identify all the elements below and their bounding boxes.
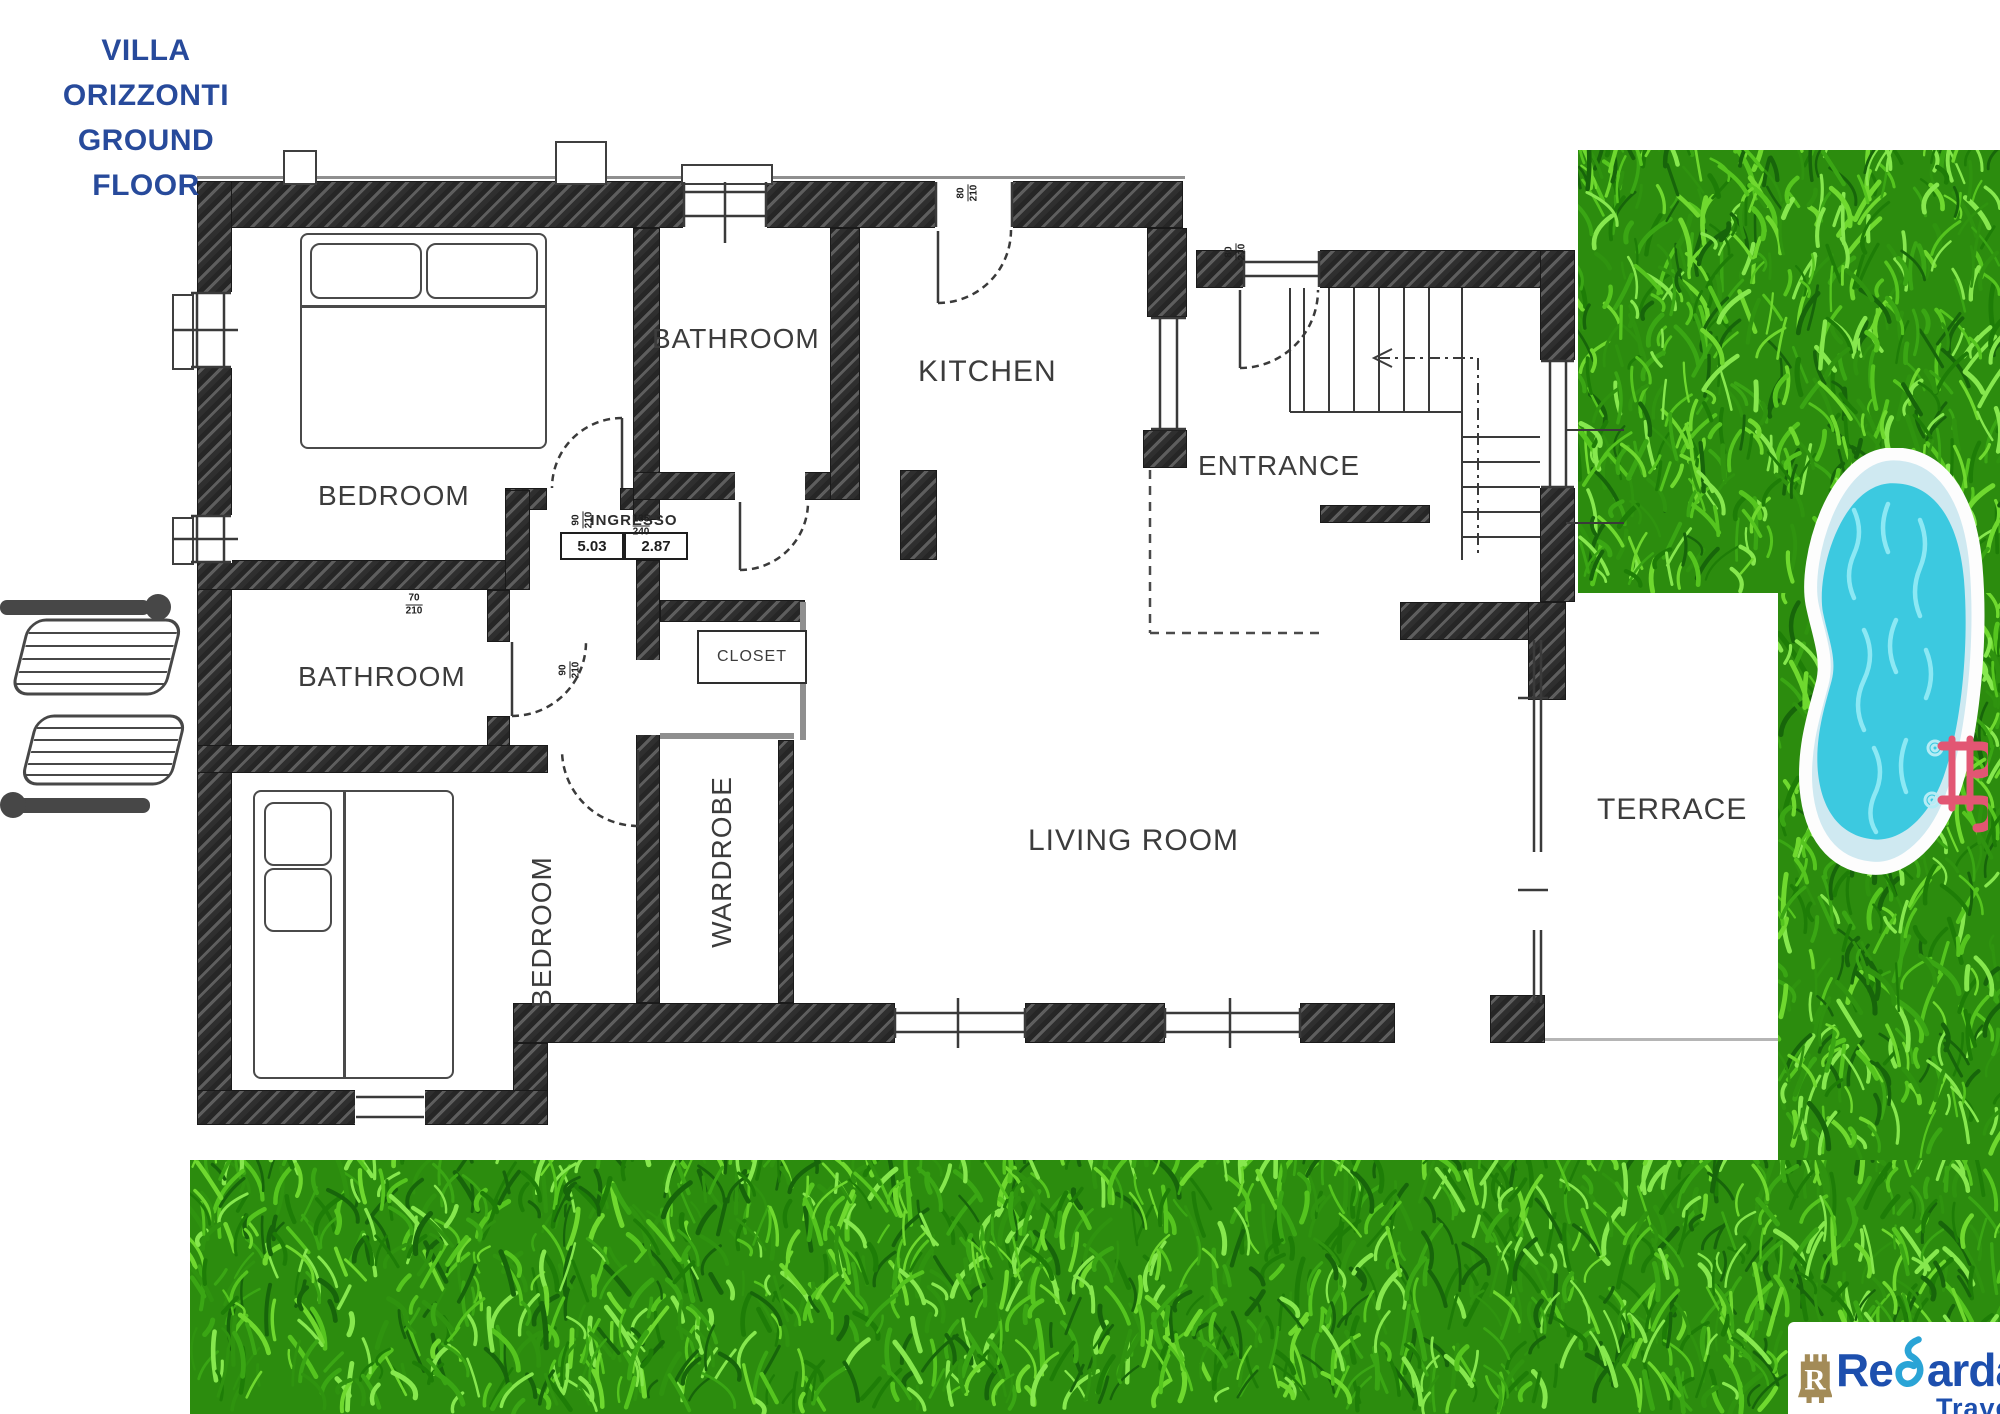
window-ticks — [172, 182, 1548, 1048]
stylized-b-glyph-icon — [1894, 1335, 1926, 1393]
openplan-dashed-boundary — [1150, 470, 1322, 633]
label-closet: CLOSET — [717, 648, 787, 666]
dimension-extension-lines — [1566, 430, 1624, 523]
logo-text: Re arda Travel — [1836, 1335, 2000, 1414]
page-title: VILLA ORIZZONTI GROUND FLOOR — [28, 28, 264, 208]
window-stairsright-glazing — [1541, 361, 1574, 487]
logo-subtitle: Travel — [1836, 1395, 2000, 1414]
floorplan-page: VILLA ORIZZONTI GROUND FLOOR — [0, 0, 2000, 1414]
label-bedroom-bottom: BEDROOM — [526, 856, 558, 1008]
label-bathroom-top: BATHROOM — [652, 323, 820, 355]
entrance-door-glazing — [1244, 251, 1319, 287]
door-entrance-inner — [1240, 290, 1318, 368]
door-dim-marker: 80210 — [957, 185, 980, 202]
door-bedroom-bottom — [562, 750, 638, 826]
door-dim-marker: 135240 — [633, 515, 650, 538]
door-dim-marker: 70210 — [406, 594, 423, 617]
castle-r-icon: R — [1798, 1333, 1832, 1414]
window-bedroom2-glazing — [356, 1097, 424, 1117]
villa-name: VILLA ORIZZONTI — [28, 28, 264, 118]
door-bathroom-left — [512, 642, 586, 716]
logo-prefix: Re — [1836, 1347, 1893, 1393]
floor-name: GROUND FLOOR — [28, 118, 264, 208]
window-living1-glazing — [895, 1008, 1025, 1038]
label-entrance: ENTRANCE — [1198, 450, 1360, 482]
logo-r-letter: R — [1804, 1364, 1826, 1396]
label-kitchen: KITCHEN — [918, 355, 1057, 389]
label-living-room: LIVING ROOM — [1028, 824, 1239, 858]
plan-linework — [0, 0, 2000, 1414]
door-dim-marker: 90210 — [572, 512, 595, 529]
closet-label-box: CLOSET — [697, 630, 807, 684]
label-bathroom-left: BATHROOM — [298, 661, 466, 693]
door-bedroom-top — [552, 418, 622, 488]
door-dim-marker: 80210 — [1225, 244, 1248, 261]
terrace-glass-wall — [1534, 640, 1541, 1003]
logo-rest: arda — [1927, 1347, 2000, 1393]
door-bathroom-top — [740, 502, 808, 570]
hall-measure-width: 5.03 — [560, 532, 624, 560]
window-living2-glazing — [1165, 1008, 1300, 1038]
door-dim-marker: 90210 — [559, 662, 582, 679]
label-terrace: TERRACE — [1597, 793, 1747, 827]
door-main-entry — [938, 230, 1011, 303]
window-kitchenpillar-glazing — [1151, 318, 1186, 429]
label-wardrobe: WARDROBE — [706, 776, 738, 948]
travel-logo-card: R Re arda Travel — [1788, 1322, 2000, 1414]
staircase — [1290, 288, 1540, 560]
label-bedroom-top: BEDROOM — [318, 480, 470, 512]
